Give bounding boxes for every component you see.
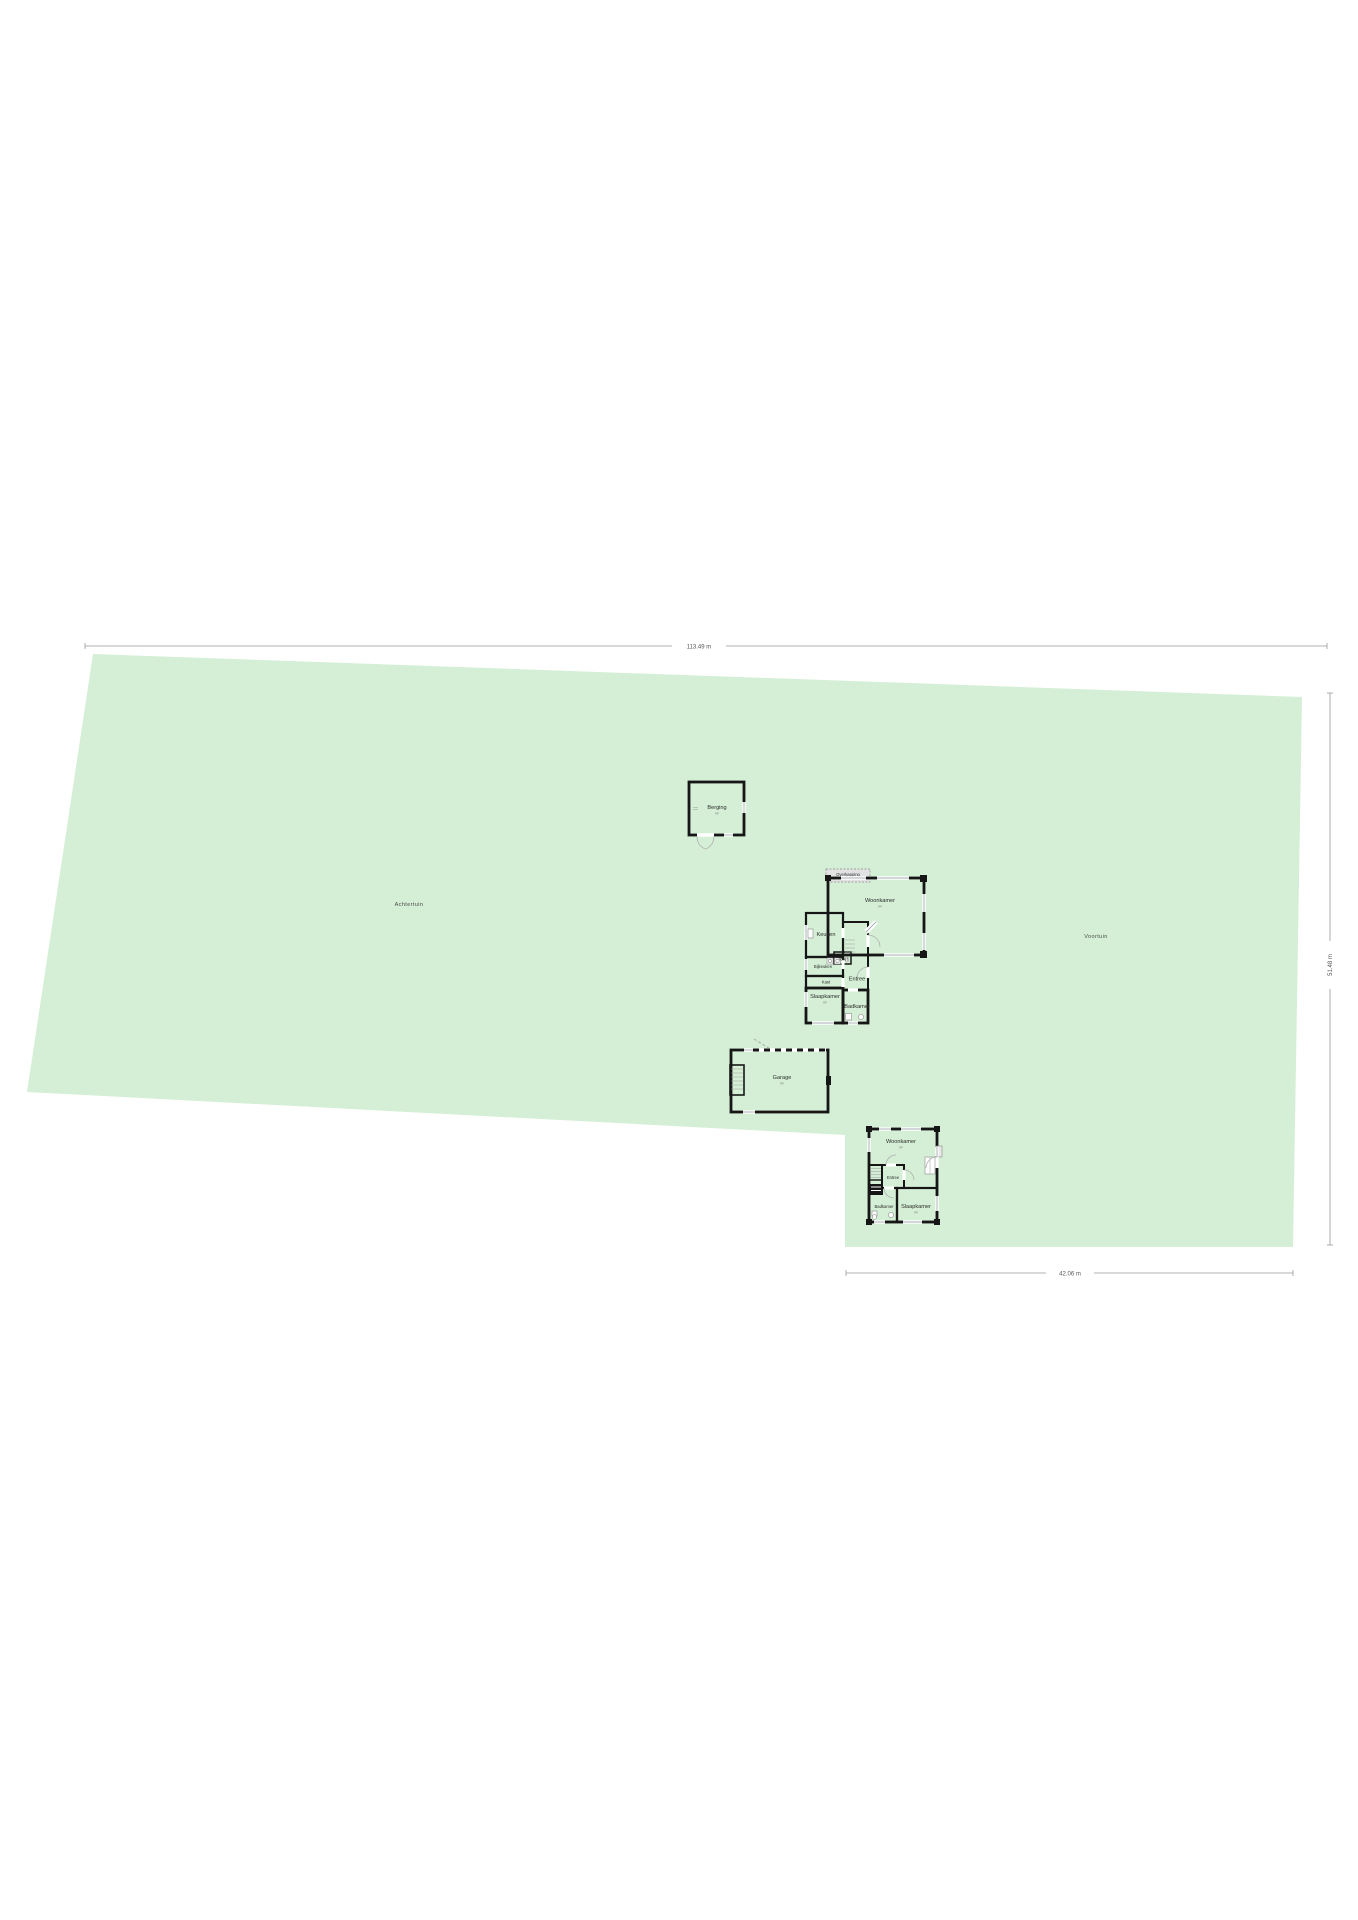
dimension-bottom-label: 42.06 m xyxy=(1059,1272,1081,1278)
dimension-top: 113.49 m xyxy=(85,643,1327,651)
plot-outline xyxy=(27,654,1302,1247)
entree-label: Entree xyxy=(849,977,865,983)
woonkamer-corner-ne xyxy=(920,875,927,882)
garage-area: m² xyxy=(780,1082,784,1086)
floorplan-svg: Achtertuin Voortuin 113.49 m 51.48 m 42.… xyxy=(0,0,1358,1920)
woonkamer-corner-se xyxy=(920,951,927,958)
toilet-label: Toilet xyxy=(838,957,849,962)
guest-slaapkamer-label: Slaapkamer xyxy=(901,1204,931,1210)
berging-area: m² xyxy=(715,812,719,816)
dimension-top-label: 113.49 m xyxy=(687,645,712,651)
woonkamer-area: m² xyxy=(878,905,882,909)
guest-sink-icon xyxy=(888,1212,893,1217)
bath-icon xyxy=(846,1014,852,1021)
guest-entree-label: Entree xyxy=(887,1175,900,1180)
dimension-right-label: 51.48 m xyxy=(1328,954,1334,976)
overkapping-label: Overkapping xyxy=(836,872,860,877)
keuken-label: Keuken xyxy=(817,932,836,938)
sink-icon xyxy=(858,1014,863,1019)
bijkeuken-label: Bijkeuken xyxy=(814,964,833,969)
garage-chimney xyxy=(826,1076,831,1085)
guest-slaapkamer-area: m² xyxy=(914,1211,918,1215)
floorplan-canvas: Achtertuin Voortuin 113.49 m 51.48 m 42.… xyxy=(0,0,1358,1920)
berging-label: Berging xyxy=(707,805,726,811)
kitchen-sink-icon xyxy=(808,929,813,938)
back-garden-label: Achtertuin xyxy=(395,902,424,908)
woonkamer-label: Woonkamer xyxy=(865,898,895,904)
slaapkamer-area: m² xyxy=(823,1001,827,1005)
guest-corner-ne xyxy=(934,1126,940,1132)
badkamer-label: Badkamer xyxy=(844,1004,870,1010)
guest-corner-nw xyxy=(866,1126,872,1132)
guest-woonkamer-label: Woonkamer xyxy=(886,1139,916,1145)
guest-badkamer-label: Badkamer xyxy=(874,1204,894,1209)
kast-label: Kast xyxy=(822,980,831,985)
woonkamer-corner-nw xyxy=(825,875,831,881)
slaapkamer-label: Slaapkamer xyxy=(810,994,840,1000)
guest-woonkamer-area: m² xyxy=(899,1146,903,1150)
garage-label: Garage xyxy=(773,1075,792,1081)
guest-boiler xyxy=(869,1184,883,1195)
plot: Achtertuin Voortuin xyxy=(27,654,1302,1247)
front-garden-label: Voortuin xyxy=(1084,934,1107,940)
dimension-bottom: 42.06 m xyxy=(846,1270,1293,1278)
dimension-right: 51.48 m xyxy=(1327,693,1334,1245)
